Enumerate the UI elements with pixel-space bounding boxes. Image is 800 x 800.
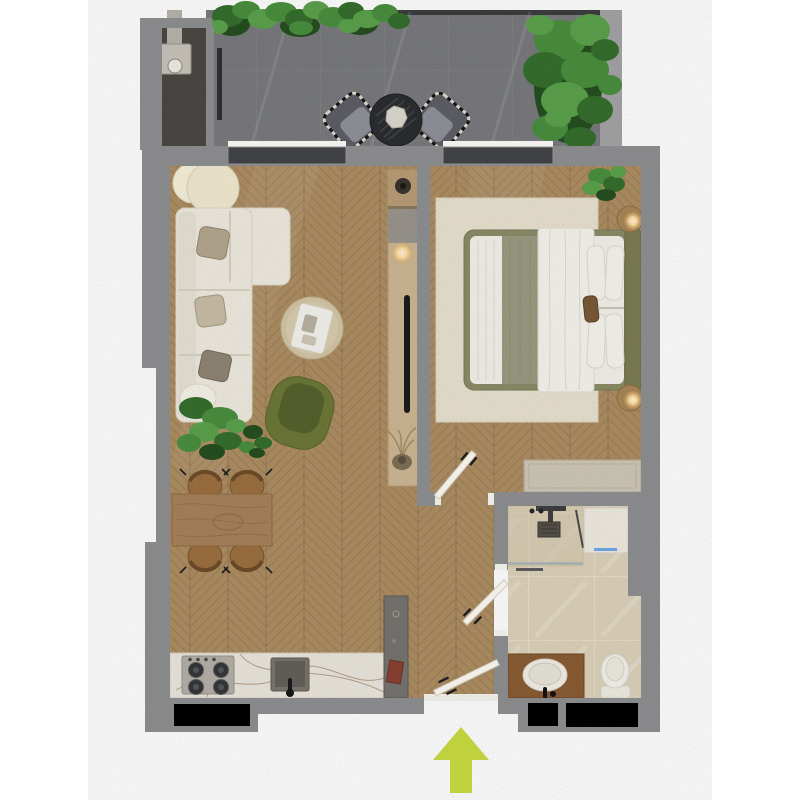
coffee-table bbox=[281, 297, 343, 359]
kitchen-counter bbox=[170, 653, 385, 698]
bed-runner bbox=[502, 236, 540, 384]
entry-threshold bbox=[424, 694, 498, 701]
floor-plan-canvas bbox=[0, 0, 800, 800]
shower-glass bbox=[508, 562, 583, 565]
vanity-sink bbox=[508, 654, 584, 699]
nightstand-lamp bbox=[617, 206, 643, 232]
sofa-pillow bbox=[196, 226, 231, 261]
partition-wall bbox=[417, 166, 430, 506]
balcony bbox=[160, 1, 622, 152]
sofa-pillow bbox=[194, 294, 227, 328]
balcony-table bbox=[370, 94, 422, 146]
washer-display bbox=[594, 548, 617, 551]
kitchen-sink bbox=[271, 658, 309, 697]
dining-table bbox=[172, 494, 272, 546]
tall-cabinet bbox=[384, 596, 408, 698]
balcony-left-wall bbox=[140, 20, 162, 150]
north-wall bbox=[142, 146, 660, 166]
nightstand-lamp bbox=[617, 385, 643, 411]
window-south-3 bbox=[566, 703, 638, 727]
accent-cushion bbox=[583, 295, 600, 322]
west-wall bbox=[142, 146, 170, 368]
drain-channel bbox=[217, 48, 222, 120]
tv-console bbox=[386, 170, 418, 486]
sofa-pillow bbox=[197, 349, 232, 383]
downpipe-clamp bbox=[168, 59, 182, 73]
stove bbox=[182, 656, 234, 695]
bed bbox=[464, 227, 641, 393]
shower bbox=[508, 506, 583, 571]
towel-bar bbox=[516, 568, 543, 571]
bathroom-west-wall bbox=[494, 506, 508, 570]
east-wall bbox=[641, 146, 660, 732]
console-lamp bbox=[391, 242, 413, 264]
balcony-door-living bbox=[228, 147, 346, 164]
faucet bbox=[543, 687, 547, 699]
entry-arrow-icon bbox=[433, 727, 489, 793]
headboard bbox=[625, 227, 641, 393]
bedroom-south-wall bbox=[494, 492, 660, 506]
dresser bbox=[524, 460, 641, 492]
floor-plan bbox=[0, 0, 800, 800]
balcony-door-bedroom bbox=[443, 147, 553, 164]
window-south-1 bbox=[174, 704, 250, 726]
window-south-2 bbox=[528, 703, 558, 726]
cabinet-item bbox=[386, 660, 403, 684]
tv bbox=[404, 295, 410, 413]
toilet bbox=[601, 654, 630, 698]
washing-machine bbox=[584, 508, 628, 553]
